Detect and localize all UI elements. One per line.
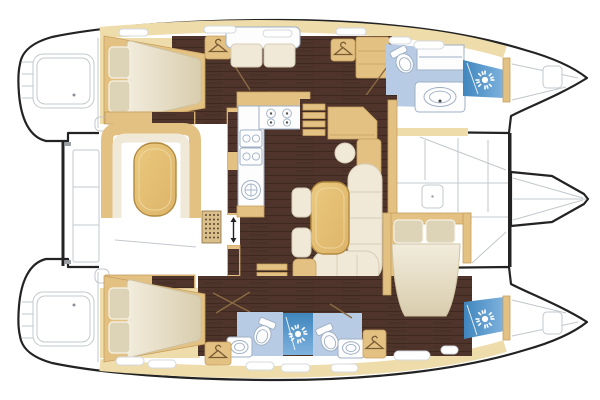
port-corridor-wardrobe bbox=[331, 39, 355, 61]
port-companionway-stairs bbox=[300, 99, 328, 141]
cleat bbox=[65, 260, 71, 264]
dining-stool bbox=[292, 228, 311, 257]
galley-appliance bbox=[240, 148, 262, 165]
catamaran-floor-plan bbox=[0, 0, 600, 400]
dining-stool bbox=[292, 188, 311, 217]
pillow bbox=[426, 220, 455, 243]
head-sink bbox=[338, 339, 364, 358]
pillow bbox=[109, 81, 130, 112]
stove bbox=[259, 106, 305, 129]
cleat bbox=[65, 142, 71, 146]
floor-plan-svg bbox=[0, 0, 600, 400]
starboard-aft-wardrobe bbox=[205, 342, 231, 365]
starboard-bow-hatch bbox=[543, 312, 562, 334]
pillow bbox=[109, 47, 130, 78]
starboard-mid-shower bbox=[283, 313, 313, 355]
starboard-bow-bulkhead bbox=[503, 296, 510, 340]
pillow bbox=[109, 288, 130, 319]
starboard-forward-wardrobe bbox=[363, 330, 386, 358]
bowsprit bbox=[511, 172, 588, 226]
salon bbox=[227, 92, 397, 305]
galley-appliance bbox=[240, 130, 262, 147]
cockpit-table bbox=[134, 143, 176, 216]
cockpit bbox=[73, 112, 227, 283]
pillow bbox=[394, 220, 423, 243]
port-bow-bulkhead bbox=[503, 58, 510, 102]
galley-round-sink bbox=[242, 181, 261, 200]
dining-table bbox=[311, 182, 349, 254]
nav-stool bbox=[335, 143, 355, 163]
mattress bbox=[392, 244, 460, 316]
aft-crossbeam bbox=[62, 142, 72, 266]
port-bow-hatch bbox=[543, 66, 562, 88]
starboard-forward-head bbox=[313, 313, 364, 358]
port-inner-gunwale bbox=[388, 128, 468, 136]
cockpit-grate bbox=[202, 211, 221, 243]
bathroom-sink bbox=[415, 82, 465, 112]
port-forward-bathroom bbox=[386, 44, 465, 112]
pillow bbox=[109, 322, 130, 353]
